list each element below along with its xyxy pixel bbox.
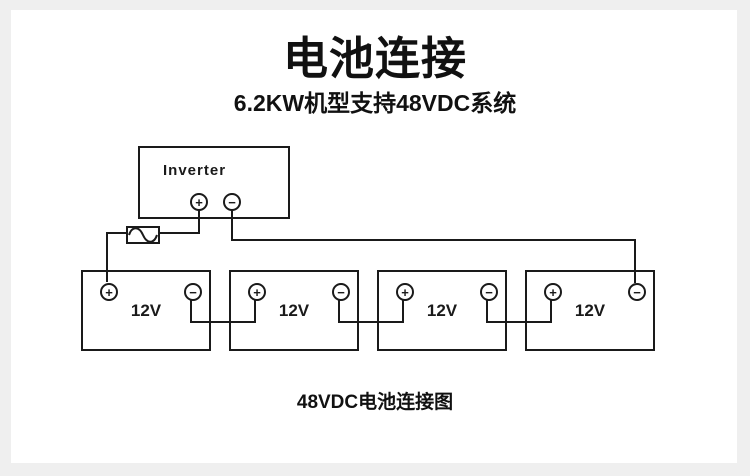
inverter-positive-terminal: +	[190, 193, 208, 211]
wire-battery4-negative-drop	[634, 239, 636, 283]
battery-1-negative-terminal: −	[184, 283, 202, 301]
wire-link2-across	[338, 321, 404, 323]
plus-icon: +	[549, 286, 557, 299]
battery-2-positive-terminal: +	[248, 283, 266, 301]
fuse-icon	[126, 226, 160, 244]
battery-2-negative-terminal: −	[332, 283, 350, 301]
minus-icon: −	[337, 286, 345, 299]
minus-icon: −	[189, 286, 197, 299]
page-background: 电池连接 6.2KW机型支持48VDC系统 Inverter + − + −	[0, 0, 750, 476]
battery-1-positive-terminal: +	[100, 283, 118, 301]
wire-link1-across	[190, 321, 256, 323]
battery-4-negative-terminal: −	[628, 283, 646, 301]
battery-4-voltage-label: 12V	[527, 301, 653, 321]
diagram-caption: 48VDC电池连接图	[0, 387, 750, 414]
page-title: 电池连接	[0, 22, 750, 87]
wire-link3-across	[486, 321, 552, 323]
minus-icon: −	[633, 286, 641, 299]
battery-3-positive-terminal: +	[396, 283, 414, 301]
plus-icon: +	[105, 286, 113, 299]
page-subtitle: 6.2KW机型支持48VDC系统	[0, 84, 750, 118]
wire-negative-bus	[231, 239, 636, 241]
battery-4-positive-terminal: +	[544, 283, 562, 301]
plus-icon: +	[253, 286, 261, 299]
inverter-label: Inverter	[163, 162, 226, 179]
battery-3-negative-terminal: −	[480, 283, 498, 301]
minus-icon: −	[485, 286, 493, 299]
inverter-negative-terminal: −	[223, 193, 241, 211]
wire-battery1-positive-drop	[106, 232, 108, 282]
battery-4: + − 12V	[525, 270, 655, 351]
minus-icon: −	[228, 196, 236, 209]
inverter-box: Inverter	[138, 146, 290, 219]
plus-icon: +	[195, 196, 203, 209]
plus-icon: +	[401, 286, 409, 299]
wire-fuse-to-battery1	[107, 232, 126, 234]
sine-wave-icon	[128, 228, 158, 242]
wire-positive-to-fuse	[160, 232, 200, 234]
